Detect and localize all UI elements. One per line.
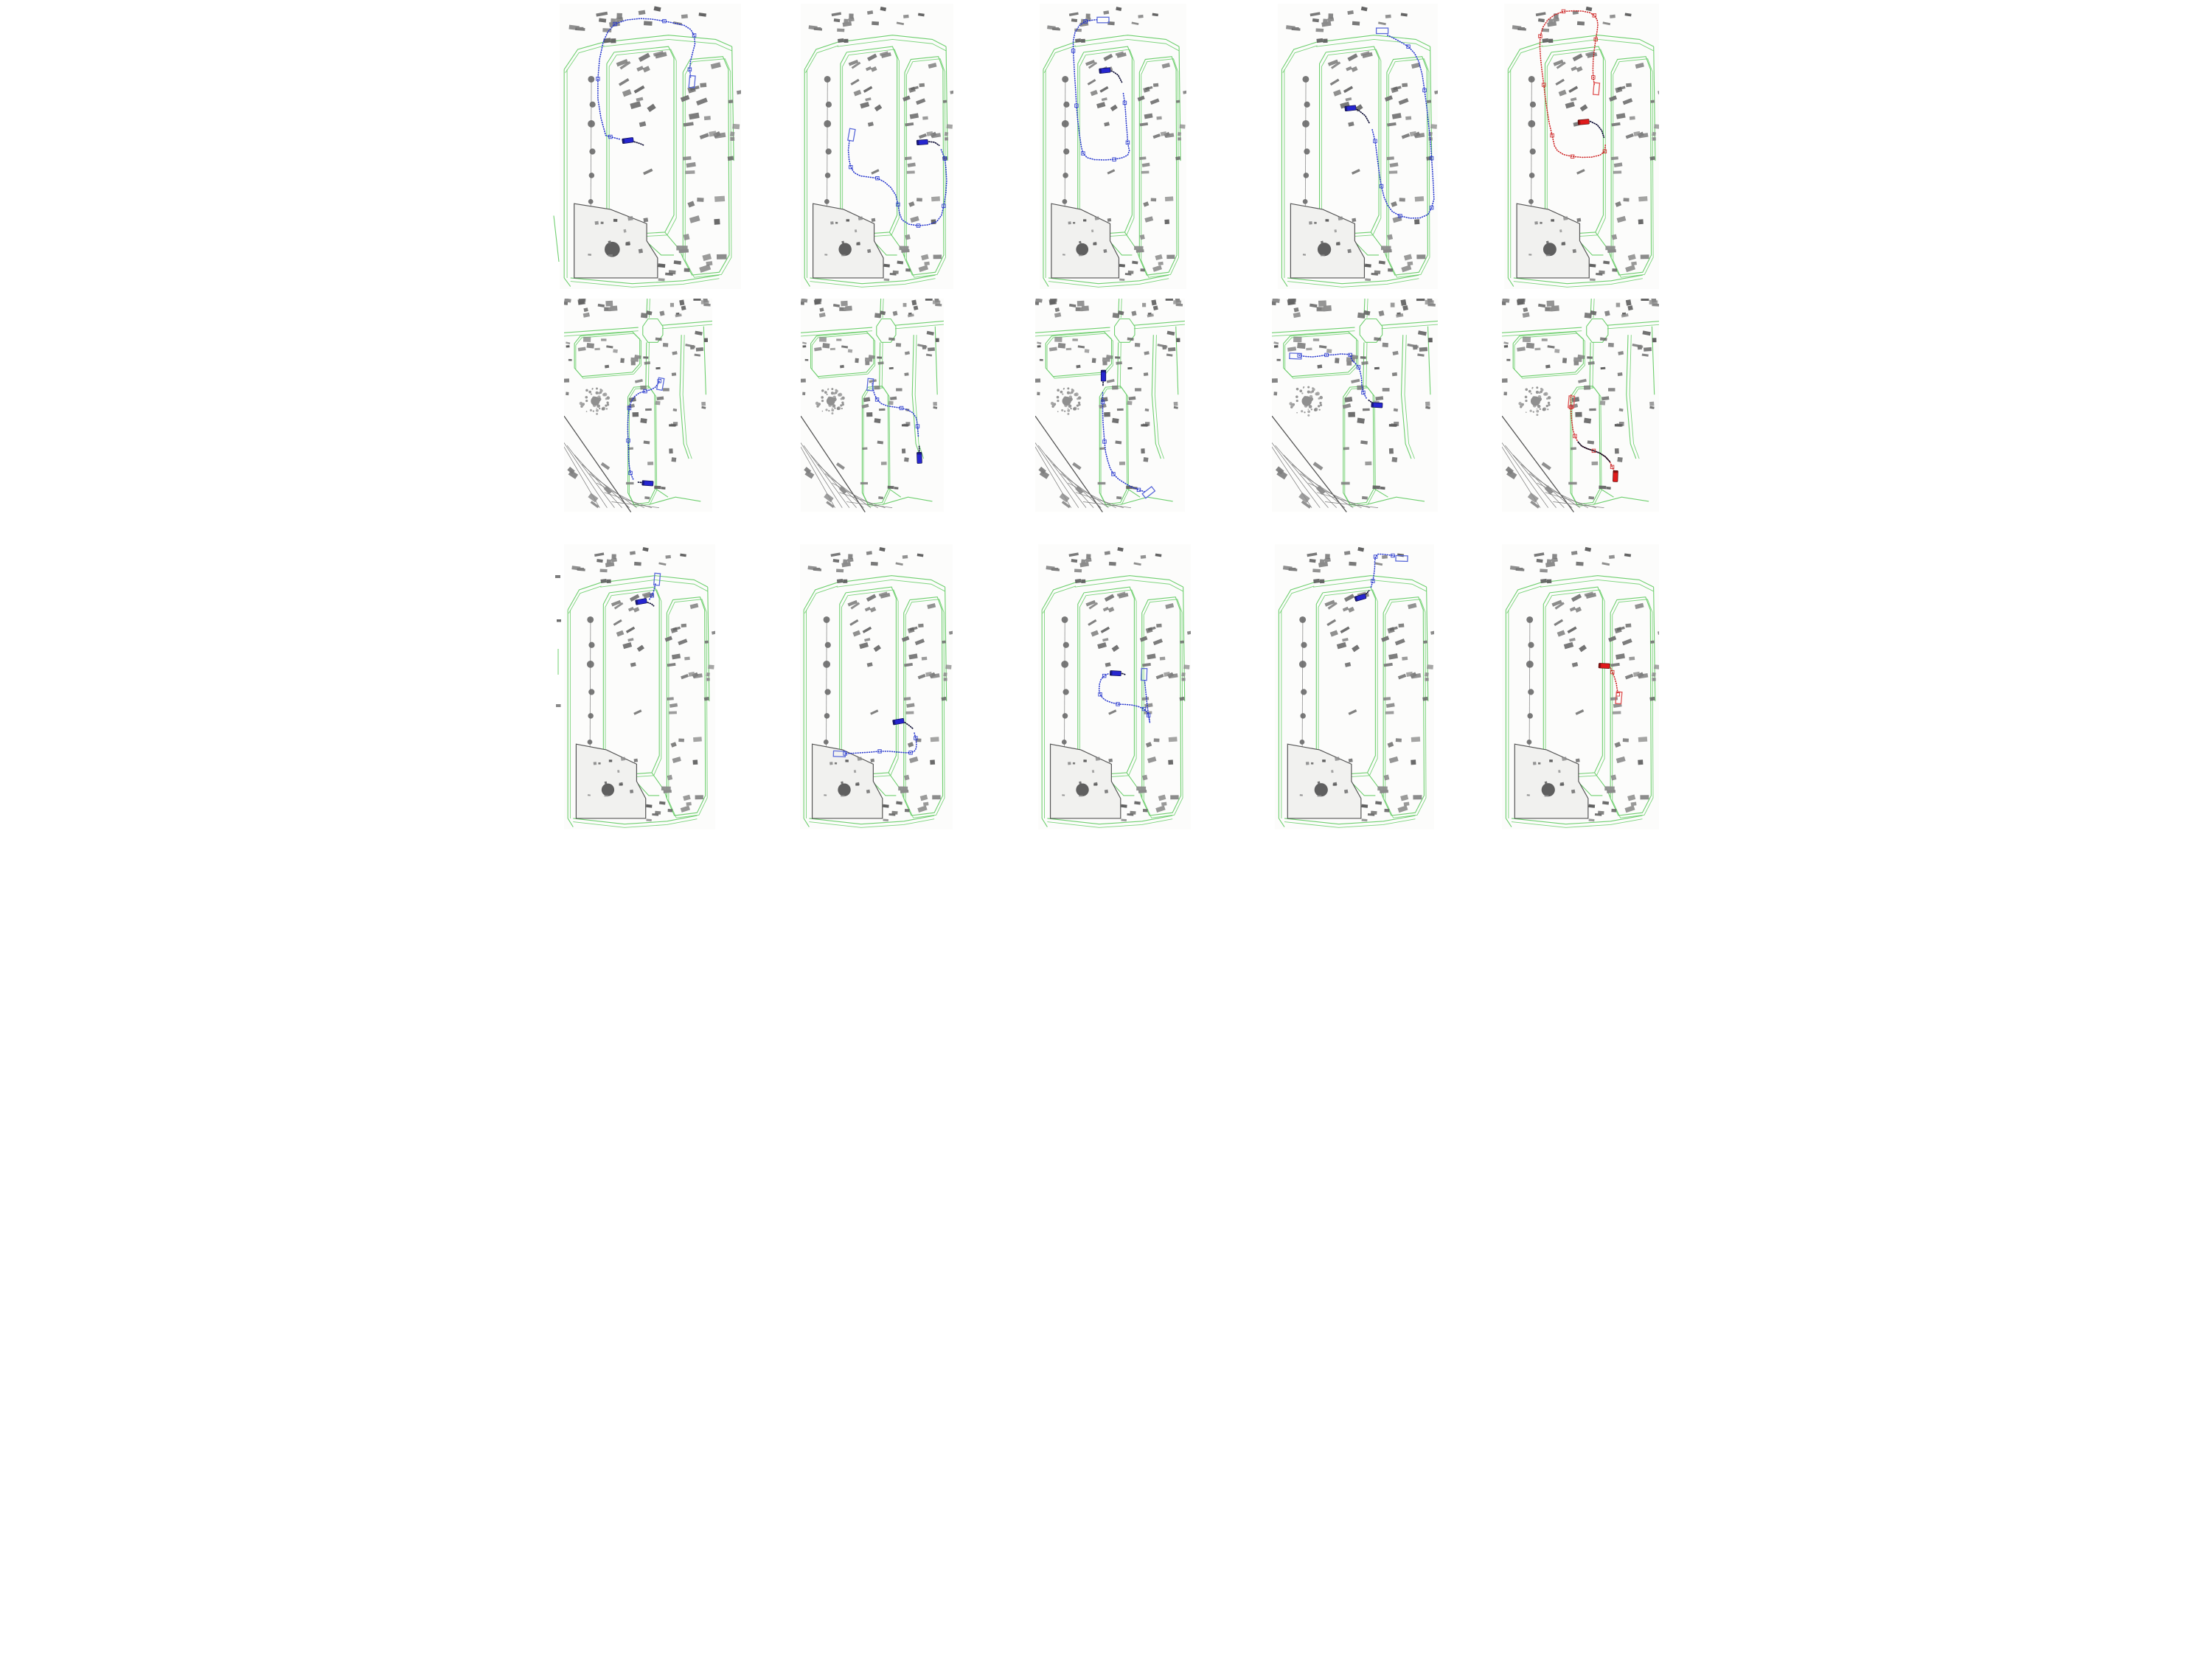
courtyard-tree [602,783,614,796]
map-clutter [697,198,703,202]
map-clutter [1640,795,1649,799]
map-clutter [1546,240,1549,243]
map-clutter [685,656,691,660]
tree-speckle [1536,387,1538,389]
map-clutter [1547,559,1552,564]
map-clutter [928,348,935,352]
tree-speckle [1307,411,1310,414]
tree-speckle [607,404,609,406]
tree-speckle [827,394,828,395]
map-clutter [1652,338,1657,343]
map-clutter [1277,359,1281,361]
street-car-blob [824,689,830,695]
map-clutter [1638,737,1647,742]
map-clutter [883,818,888,821]
map-clutter [683,156,692,161]
map-clutter [610,306,617,312]
street-car-blob [823,740,828,745]
map-clutter [858,216,862,220]
street-car-blob [588,120,595,128]
map-clutter [1605,246,1615,250]
map-clutter [1392,372,1397,376]
map-clutter [685,170,695,174]
map-clutter [1382,554,1388,558]
map-clutter [605,795,609,796]
tree-speckle [1526,412,1527,414]
map-clutter [1374,271,1380,274]
tree-speckle [837,408,840,411]
map-clutter [894,487,899,490]
map-clutter [837,28,844,32]
tree-speckle [605,398,607,400]
map-clutter [1404,801,1410,806]
tree-speckle [821,397,824,400]
map-clutter [1169,737,1178,742]
map-clutter [1608,389,1615,392]
panel-r3c5 [1502,544,1659,829]
map-clutter [942,640,946,643]
street-car-blob [1302,199,1307,204]
map-clutter [728,100,734,103]
map-clutter [695,347,703,352]
map-clutter [1573,249,1576,253]
map-clutter [841,795,845,796]
map-background [800,544,953,829]
map-clutter [1107,218,1110,222]
map-clutter [1398,623,1404,627]
tree-speckle [1075,393,1079,397]
tree-speckle [824,392,827,394]
tree-speckle [1547,409,1548,411]
map-clutter [1062,794,1065,796]
street-car-blob [1299,661,1307,668]
map-clutter [1103,249,1107,253]
map-clutter [1589,408,1596,411]
map-clutter [1108,758,1113,762]
map-clutter [1534,348,1540,351]
map-clutter [946,124,953,128]
tree-core [591,397,599,406]
map-clutter [1631,801,1637,806]
map-clutter [1615,448,1619,453]
tree-speckle [822,411,824,412]
panel-svg-r3c4 [1275,544,1434,829]
map-clutter [1545,365,1551,369]
map-clutter [1112,386,1119,390]
map-clutter [669,270,676,274]
map-clutter [841,241,844,244]
panel-r2c1 [564,299,712,512]
map-clutter [1360,357,1366,360]
tree-speckle [598,392,600,394]
map-clutter [1540,222,1542,224]
map-clutter [803,346,807,348]
map-clutter [704,116,711,120]
map-clutter [1425,678,1429,681]
tree-speckle [1304,412,1305,414]
map-clutter [863,448,868,451]
map-clutter [644,497,650,500]
map-clutter [1584,386,1590,390]
map-clutter [1349,561,1356,566]
map-clutter [923,801,929,805]
street-car-blob [1302,120,1310,128]
map-clutter [1654,664,1659,669]
map-clutter [1638,346,1643,348]
tree-speckle [1540,389,1543,392]
tree-speckle [1307,386,1310,389]
map-clutter [1641,299,1649,301]
map-clutter [1141,171,1149,174]
map-clutter [1094,216,1099,220]
panel-r1c1 [560,4,741,289]
map-clutter [898,786,908,790]
map-clutter [930,759,935,765]
map-clutter [912,300,917,306]
map-clutter [627,216,633,220]
map-clutter [1115,357,1120,359]
map-clutter [840,365,844,369]
tree-speckle [1068,409,1071,412]
map-clutter [1590,278,1596,281]
panel-r2c2 [801,299,944,512]
map-clutter [1079,781,1082,784]
map-clutter [840,307,844,310]
street-car-blob [825,148,831,154]
map-clutter [1399,198,1405,201]
map-clutter [1037,392,1040,396]
tree-speckle [1071,389,1074,392]
map-clutter [841,254,846,256]
map-clutter [1402,656,1408,660]
street-car-blob [1062,713,1068,718]
tree-speckle [1063,389,1065,390]
map-clutter [732,124,740,129]
map-clutter [904,809,909,812]
map-clutter [917,198,922,201]
street-car-blob [1526,661,1534,668]
map-clutter [730,137,734,141]
map-clutter [1164,196,1172,201]
map-clutter [835,222,837,224]
map-clutter [666,554,672,558]
map-clutter [1181,672,1185,676]
map-clutter [1343,448,1349,451]
map-clutter [1386,156,1394,160]
map-clutter [1623,738,1629,742]
map-clutter [1649,402,1654,406]
tree-speckle [815,402,818,405]
tree-speckle [1536,414,1538,417]
map-clutter [838,38,844,43]
map-clutter [1425,672,1429,676]
street-car-blob [825,102,831,108]
map-clutter [601,339,606,341]
map-clutter [1654,124,1659,128]
map-clutter [1320,579,1324,583]
map-clutter [933,254,942,259]
map-clutter [903,697,911,700]
map-clutter [1384,808,1389,812]
map-clutter [643,218,648,222]
map-clutter [643,357,648,359]
map-clutter [1588,496,1594,499]
tree-speckle [1296,400,1298,402]
vehicle-box [641,481,653,487]
map-clutter [1182,678,1186,681]
map-clutter [1055,337,1062,342]
tree-speckle [834,392,836,394]
vehicle-box [1102,370,1106,381]
map-clutter [1128,367,1133,369]
map-clutter [1142,303,1146,307]
map-clutter [600,568,608,572]
panel-r1c5 [1504,4,1659,289]
map-clutter [1287,299,1296,305]
street-car-blob [823,616,829,623]
map-clutter [919,83,925,87]
map-clutter [829,762,833,765]
map-clutter [1545,307,1550,310]
tree-speckle [832,409,835,412]
vehicle-box [1613,471,1618,482]
tree-speckle [579,402,582,405]
map-clutter [595,221,599,225]
map-clutter [849,13,853,18]
map-clutter [837,339,842,341]
map-clutter [700,83,706,87]
tree-speckle [829,410,830,411]
street-car-blob [1062,76,1068,83]
map-clutter [879,497,884,500]
map-clutter [1068,221,1071,224]
map-clutter [1504,345,1508,348]
panel-r3c3 [1038,544,1191,829]
map-clutter [1141,697,1149,700]
map-clutter [830,348,835,350]
vehicle-box [1599,663,1610,668]
map-clutter [655,367,660,369]
map-clutter [1092,358,1096,364]
map-clutter [1542,38,1548,43]
map-clutter [1082,306,1089,312]
map-clutter [883,804,888,807]
map-clutter [1540,568,1548,572]
map-clutter [1352,218,1356,223]
map-clutter [1549,759,1553,762]
map-clutter [1274,345,1279,348]
map-clutter [1317,307,1322,311]
map-clutter [1315,28,1324,32]
map-clutter [640,313,647,319]
street-car-blob [1062,199,1067,204]
map-clutter [1382,389,1390,392]
map-clutter [634,561,641,565]
map-clutter [663,389,669,392]
tree-speckle [1543,408,1545,411]
map-clutter [1644,347,1652,352]
map-clutter [661,786,671,790]
map-clutter [1547,301,1555,307]
tree-speckle [1295,396,1298,399]
map-clutter [1312,568,1321,572]
map-clutter [1419,347,1427,352]
tree-speckle [1077,398,1079,400]
tree-speckle [1303,388,1304,389]
tree-speckle [1057,411,1059,413]
map-clutter [1183,664,1189,669]
map-clutter [1117,408,1124,411]
map-clutter [1576,218,1581,222]
map-clutter [1335,757,1340,761]
map-clutter [1139,156,1146,160]
street-car-blob [823,661,830,668]
street-car-blob [589,689,595,695]
street-car-blob [1526,616,1533,623]
map-clutter [1179,124,1185,128]
map-clutter [925,299,933,301]
map-clutter [1576,758,1580,762]
map-clutter [1113,313,1120,319]
map-clutter [662,343,667,347]
panel-r2c5 [1502,299,1659,512]
panel-svg-r3c2 [800,544,953,829]
street-car-blob [1299,616,1306,623]
map-clutter [902,554,908,558]
map-clutter [932,795,940,799]
street-car-blob [590,102,596,108]
map-clutter [667,697,675,700]
map-clutter [1320,559,1325,564]
map-clutter [1382,343,1388,347]
courtyard-tree [1543,243,1557,256]
map-clutter [872,21,879,26]
map-clutter [621,757,625,760]
tree-speckle [832,408,833,409]
map-clutter [1631,262,1637,265]
left-edge-sliver-row3 [553,564,564,730]
map-clutter [1575,412,1582,417]
panel-svg-r2c4 [1272,299,1438,512]
map-clutter [1178,137,1181,140]
map-clutter [703,304,710,307]
tree-speckle [1301,411,1303,413]
map-background [560,4,741,289]
map-clutter [1606,487,1610,490]
panel-r2c3 [1035,299,1185,512]
map-clutter [1519,27,1525,29]
map-clutter [608,254,613,257]
map-clutter [924,262,930,265]
map-clutter [1604,786,1614,790]
map-clutter [601,579,608,583]
map-clutter [1166,299,1173,301]
tree-core [1302,397,1312,406]
map-clutter [1545,795,1549,796]
map-clutter [1377,786,1387,790]
map-clutter [564,379,569,383]
map-clutter [1156,116,1161,120]
map-clutter [1430,124,1437,129]
map-clutter [931,196,940,201]
street-car-blob [589,641,595,647]
map-clutter [904,156,911,160]
map-clutter [835,568,843,572]
map-clutter [612,554,616,558]
panel-r3c2 [800,544,953,829]
tree-speckle [1301,393,1303,394]
map-clutter [607,579,611,582]
tree-core [1062,397,1071,406]
trajectory-figure [553,0,1659,829]
vehicle-box [1344,105,1356,111]
map-clutter [706,672,710,677]
map-clutter [630,789,633,793]
map-clutter [693,299,700,301]
tree-speckle [1062,409,1064,411]
street-car-blob [1300,740,1305,745]
map-clutter [877,357,883,359]
tree-speckle [596,408,597,410]
map-clutter [693,737,702,742]
map-clutter [896,344,901,347]
map-clutter [1156,623,1162,627]
map-clutter [1652,672,1656,676]
map-clutter [695,795,703,799]
map-clutter [566,346,569,348]
map-clutter [874,313,881,319]
map-clutter [1144,373,1148,377]
map-clutter [1320,254,1324,256]
map-clutter [1180,640,1184,643]
panel-r1c3 [1040,4,1186,289]
tree-speckle [1319,409,1321,411]
map-clutter [918,623,924,627]
map-clutter [1551,219,1554,221]
tree-speckle [841,408,843,409]
map-clutter [848,554,852,559]
map-clutter [841,781,844,784]
panel-svg-r2c2 [801,299,944,512]
map-clutter [706,261,712,265]
map-clutter [1352,21,1359,26]
map-clutter [1321,240,1324,243]
map-clutter [1371,810,1377,814]
map-clutter [1652,304,1659,307]
street-car-blob [1304,148,1310,154]
map-clutter [1630,116,1635,119]
map-clutter [1385,15,1391,18]
map-clutter [661,487,665,490]
map-clutter [1119,279,1124,281]
map-clutter [1610,15,1615,18]
tree-speckle [1310,392,1312,394]
street-car-blob [1062,173,1068,178]
map-clutter [586,343,594,349]
map-clutter [607,559,612,564]
map-background [1272,299,1438,512]
map-clutter [1587,357,1593,360]
map-clutter [1086,554,1091,559]
map-clutter [1362,818,1368,821]
vehicle-box [1099,68,1110,74]
street-car-blob [824,641,830,647]
map-clutter [1313,578,1320,582]
map-clutter [1601,367,1606,369]
map-clutter [1105,412,1111,417]
map-clutter [1388,268,1393,272]
map-clutter [1347,249,1352,254]
